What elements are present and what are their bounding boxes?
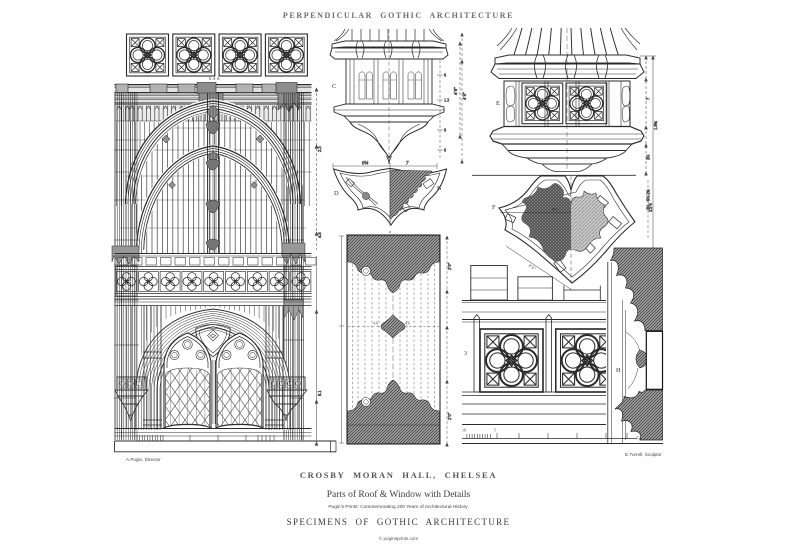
svg-text:2’0”: 2’0” [447,262,452,270]
svg-text:H: H [616,367,621,374]
svg-text:B: B [437,185,442,192]
svg-text:F: F [492,204,496,211]
svg-text:1.3: 1.3 [444,98,449,103]
svg-text:2.3: 2.3 [317,146,322,152]
svg-text:E: E [496,100,500,107]
svg-text:3.5·6: 3.5·6 [648,203,653,212]
svg-text:4.6: 4.6 [317,232,322,238]
svg-text:4’6”: 4’6” [453,87,458,95]
svg-text:8.1: 8.1 [317,390,322,396]
svg-text:a: a [389,229,391,234]
svg-text:8: 8 [444,73,446,78]
svg-text:1.8¾: 1.8¾ [653,120,658,130]
svg-text:D: D [334,190,339,197]
svg-text:4’6”: 4’6” [527,263,536,272]
svg-text:9: 9 [444,128,446,133]
svg-text:6·4·A: 6·4·A [209,76,220,81]
svg-text:6¼: 6¼ [362,162,369,167]
svg-text:4.6: 4.6 [405,321,410,326]
svg-text:4.6: 4.6 [373,321,378,326]
svg-text:2’0”: 2’0” [447,412,452,420]
svg-text:4½: 4½ [552,207,558,212]
svg-text:C: C [332,83,336,90]
svg-text:3: 3 [464,351,467,357]
svg-text:5: 5 [494,428,496,433]
svg-text:3½: 3½ [646,155,651,160]
svg-text:4’6”: 4’6” [462,92,467,100]
svg-text:10: 10 [462,428,466,433]
svg-text:6: 6 [444,148,446,153]
